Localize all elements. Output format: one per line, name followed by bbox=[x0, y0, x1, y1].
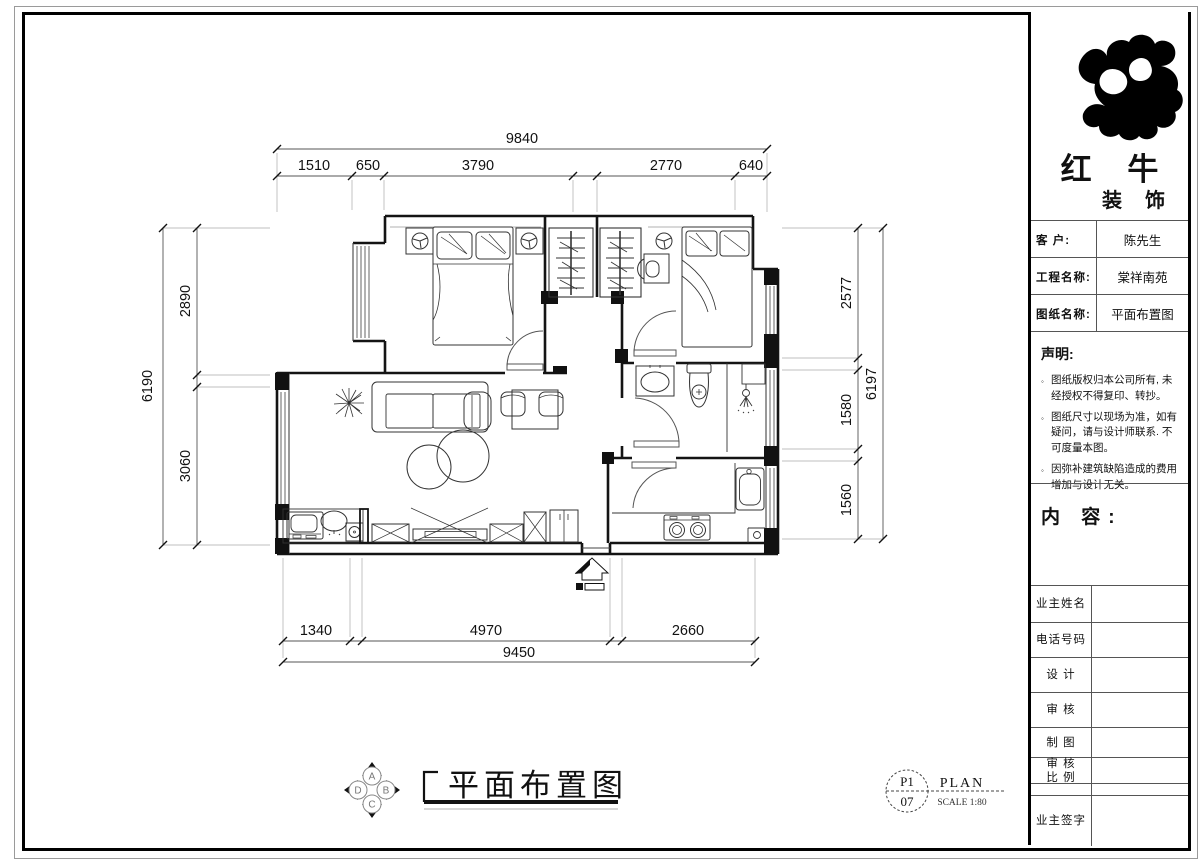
tv-board bbox=[411, 508, 488, 543]
dim-top-total: 9840 bbox=[506, 131, 538, 147]
walls bbox=[277, 216, 778, 554]
wash-basin bbox=[321, 511, 347, 535]
kitchen bbox=[612, 463, 765, 543]
dining-chair bbox=[501, 392, 525, 416]
south-band bbox=[283, 508, 578, 543]
coffee-table bbox=[437, 430, 489, 482]
dimension-lines bbox=[163, 149, 883, 662]
wardrobe-right bbox=[600, 228, 641, 297]
stove bbox=[664, 515, 710, 540]
dim-bottom-seg2: 4970 bbox=[470, 623, 502, 639]
dim-right-seg1: 2577 bbox=[839, 277, 855, 309]
wall-piers bbox=[275, 269, 778, 554]
ref-number: P1 bbox=[900, 774, 914, 789]
kitchen-sink bbox=[736, 468, 764, 510]
dim-top-seg5: 640 bbox=[739, 158, 763, 174]
dining-chair bbox=[539, 392, 563, 416]
content-label: 内 容: bbox=[1031, 502, 1188, 529]
tv-set bbox=[287, 512, 323, 539]
compass-d: D bbox=[354, 786, 361, 797]
counter-edge bbox=[612, 463, 735, 513]
bath-window bbox=[770, 370, 774, 446]
client-label: 客 户: bbox=[1031, 221, 1097, 258]
form-row-owner-name: 业主姓名 bbox=[1031, 585, 1188, 623]
statement-section: 声明: ◦ 图纸版权归本公司所有, 未经授权不得复印、转抄。 ◦ 图纸尺寸以现场… bbox=[1031, 344, 1188, 498]
wall-stub bbox=[360, 509, 368, 543]
drawing-caption: 平面布置图 bbox=[424, 768, 628, 809]
client-value: 陈先生 bbox=[1097, 221, 1188, 258]
project-label: 工程名称: bbox=[1031, 258, 1097, 295]
windows bbox=[281, 246, 774, 528]
lamp-icon bbox=[521, 233, 537, 249]
dim-top-seg2: 650 bbox=[356, 158, 380, 174]
ref-name: PLAN bbox=[940, 776, 985, 791]
wardrobe-left bbox=[549, 228, 593, 297]
brand-subtitle: 装 饰 bbox=[1031, 184, 1188, 213]
sheetname-value: 平面布置图 bbox=[1097, 295, 1188, 332]
bathroom bbox=[636, 363, 765, 452]
sofa bbox=[372, 382, 488, 432]
info-row-client: 客 户: 陈先生 bbox=[1031, 220, 1188, 258]
title-block: 红 牛 装 饰 客 户: 陈先生 工程名称: 棠祥南苑 图纸名称: 平面布置图 … bbox=[1028, 12, 1188, 845]
dim-right-seg2: 1580 bbox=[839, 394, 855, 426]
statement-item: ◦ 图纸尺寸以现场为准，如有疑问，请与设计师联系. 不可度量本图。 bbox=[1041, 410, 1180, 457]
fridge bbox=[550, 510, 578, 542]
lamp-icon bbox=[656, 233, 672, 249]
dim-right-seg3: 1560 bbox=[839, 484, 855, 516]
form-row-phone: 电话号码 bbox=[1031, 622, 1188, 658]
compass-c: C bbox=[368, 800, 375, 811]
drawing-title: 平面布置图 bbox=[448, 768, 628, 803]
bedroom2-window bbox=[770, 286, 774, 334]
master-bedroom-door bbox=[507, 331, 543, 370]
extension-lines bbox=[163, 153, 883, 658]
entry-arrow-icon bbox=[575, 558, 608, 590]
sheetname-label: 图纸名称: bbox=[1031, 295, 1097, 332]
ref-scale: SCALE 1:80 bbox=[937, 798, 987, 808]
desk-and-chair bbox=[638, 254, 669, 283]
armchair bbox=[464, 392, 491, 430]
statement-item: ◦ 因弥补建筑缺陷造成的费用增加与设计无关。 bbox=[1041, 462, 1180, 494]
bedroom2 bbox=[638, 227, 752, 347]
closets bbox=[549, 228, 641, 297]
plant bbox=[334, 388, 364, 417]
compass-a: A bbox=[369, 772, 376, 783]
dining-set bbox=[501, 390, 563, 429]
shower-head-icon bbox=[738, 384, 754, 413]
company-logo-bull-icon bbox=[1049, 30, 1199, 145]
bay-window bbox=[357, 246, 369, 338]
floor-plan-drawing: 9840 1510 650 3790 2770 640 1340 4970 26… bbox=[0, 0, 1028, 865]
sink bbox=[641, 372, 669, 392]
form-row-review: 审 核 bbox=[1031, 692, 1188, 728]
dim-bottom-seg3: 2660 bbox=[672, 623, 704, 639]
project-value: 棠祥南苑 bbox=[1097, 258, 1188, 295]
bathroom-door bbox=[634, 398, 679, 447]
doors bbox=[507, 311, 679, 508]
brand-name: 红 牛 bbox=[1031, 144, 1188, 189]
toilet bbox=[687, 364, 711, 407]
reference-bubble: P1 07 PLAN SCALE 1:80 bbox=[886, 770, 1006, 812]
tv-cabinet-right bbox=[490, 524, 523, 542]
dim-left-total: 6190 bbox=[140, 370, 156, 402]
compass-icon: A B C D bbox=[344, 762, 400, 818]
statement-item: ◦ 图纸版权归本公司所有, 未经授权不得复印、转抄。 bbox=[1041, 373, 1180, 405]
ref-sheet: 07 bbox=[901, 794, 915, 809]
kitchen-window bbox=[770, 468, 774, 528]
living-room bbox=[334, 382, 563, 489]
lamp-icon bbox=[412, 233, 428, 249]
coffee-table bbox=[407, 445, 451, 489]
pillow bbox=[720, 231, 749, 256]
tv-cabinet-left bbox=[372, 524, 409, 542]
form-row-owner-sign: 业主签字 bbox=[1031, 795, 1188, 846]
dim-top-seg1: 1510 bbox=[298, 158, 330, 174]
dim-left-seg1: 2890 bbox=[178, 285, 194, 317]
dim-right-total: 6197 bbox=[864, 368, 880, 400]
bedroom2-door bbox=[634, 311, 676, 356]
form-row-draft: 制 图 bbox=[1031, 727, 1188, 758]
dim-top-seg4: 2770 bbox=[650, 158, 682, 174]
shoe-cabinet bbox=[524, 512, 546, 542]
dimension-labels: 9840 1510 650 3790 2770 640 1340 4970 26… bbox=[140, 131, 880, 661]
single-bed bbox=[682, 227, 752, 347]
dim-bottom-seg1: 1340 bbox=[300, 623, 332, 639]
statement-title: 声明: bbox=[1041, 344, 1180, 364]
form-row-review-scale: 审 核 比 例 bbox=[1031, 757, 1188, 784]
pillow bbox=[686, 231, 717, 256]
form-row-design: 设 计 bbox=[1031, 657, 1188, 693]
master-bedroom bbox=[390, 227, 543, 345]
dim-left-seg2: 3060 bbox=[178, 450, 194, 482]
compass-b: B bbox=[383, 786, 390, 797]
double-bed bbox=[433, 227, 513, 345]
living-window bbox=[281, 392, 285, 504]
dim-bottom-total: 9450 bbox=[503, 645, 535, 661]
drawing-sheet: 9840 1510 650 3790 2770 640 1340 4970 26… bbox=[0, 0, 1200, 865]
kitchen-door bbox=[632, 462, 676, 508]
info-row-sheetname: 图纸名称: 平面布置图 bbox=[1031, 294, 1188, 332]
dim-top-seg3: 3790 bbox=[462, 158, 494, 174]
info-row-project: 工程名称: 棠祥南苑 bbox=[1031, 257, 1188, 295]
